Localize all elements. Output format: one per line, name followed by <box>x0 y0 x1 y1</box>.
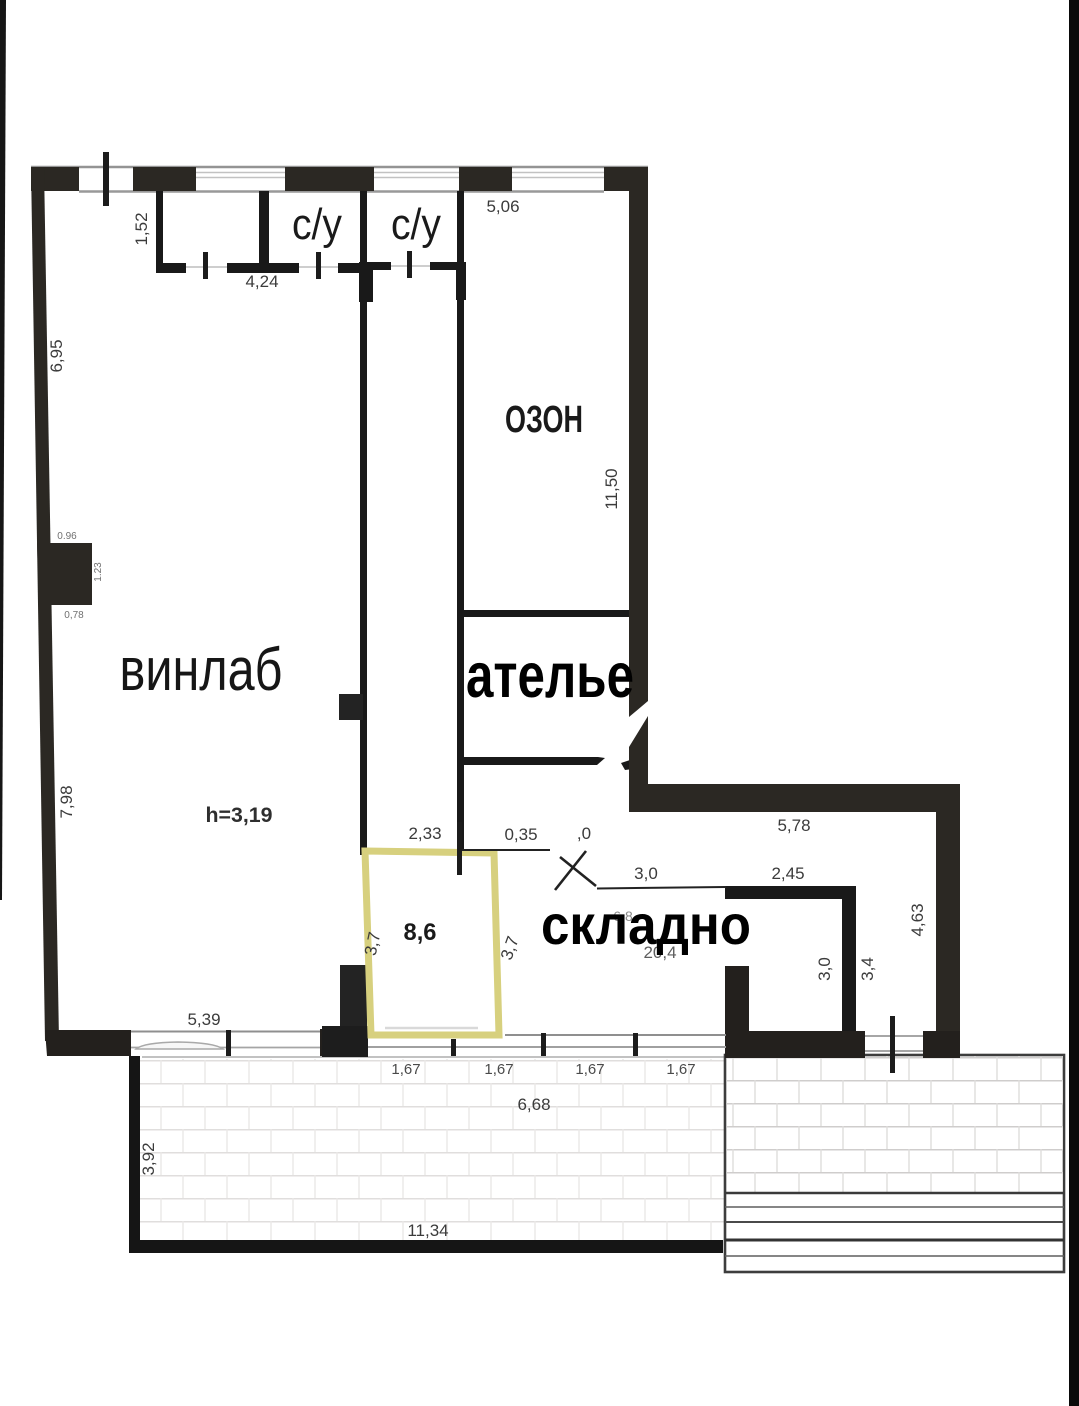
svg-text:1.23: 1.23 <box>93 562 104 582</box>
svg-text:1,67: 1,67 <box>575 1061 604 1078</box>
svg-text:5,78: 5,78 <box>777 816 810 835</box>
svg-text:6,68: 6,68 <box>517 1095 550 1114</box>
svg-text:ателье: ателье <box>466 641 634 711</box>
svg-text:с/у: с/у <box>391 200 441 249</box>
svg-text:с/у: с/у <box>292 200 342 249</box>
svg-text:11,50: 11,50 <box>602 468 621 509</box>
svg-text:11,34: 11,34 <box>407 1221 448 1240</box>
svg-text:7,98: 7,98 <box>57 785 76 818</box>
svg-text:3,4: 3,4 <box>858 957 877 981</box>
svg-text:4,24: 4,24 <box>245 272 278 291</box>
svg-text:0,35: 0,35 <box>504 825 537 844</box>
svg-text:винлаб: винлаб <box>120 636 283 703</box>
svg-text:3,0: 3,0 <box>634 864 658 883</box>
svg-text:h=3,19: h=3,19 <box>206 804 273 827</box>
svg-text:1,52: 1,52 <box>132 212 151 245</box>
svg-text:ОЗОН: ОЗОН <box>505 399 583 441</box>
svg-text:складно: складно <box>541 893 751 956</box>
svg-text:5,06: 5,06 <box>486 197 519 216</box>
svg-text:4,63: 4,63 <box>908 903 927 936</box>
svg-text:3,0: 3,0 <box>815 957 834 981</box>
svg-text:,0: ,0 <box>577 824 591 843</box>
svg-text:0,78: 0,78 <box>64 610 84 621</box>
svg-text:8,6: 8,6 <box>404 919 437 946</box>
svg-text:2,33: 2,33 <box>408 824 441 843</box>
svg-text:5,39: 5,39 <box>187 1010 220 1029</box>
svg-text:6,95: 6,95 <box>47 339 66 372</box>
svg-text:1,67: 1,67 <box>666 1061 695 1078</box>
svg-text:3,92: 3,92 <box>139 1142 158 1175</box>
svg-text:2,45: 2,45 <box>771 864 804 883</box>
svg-text:0.96: 0.96 <box>57 531 77 542</box>
svg-text:1,67: 1,67 <box>484 1061 513 1078</box>
svg-text:1,67: 1,67 <box>391 1061 420 1078</box>
